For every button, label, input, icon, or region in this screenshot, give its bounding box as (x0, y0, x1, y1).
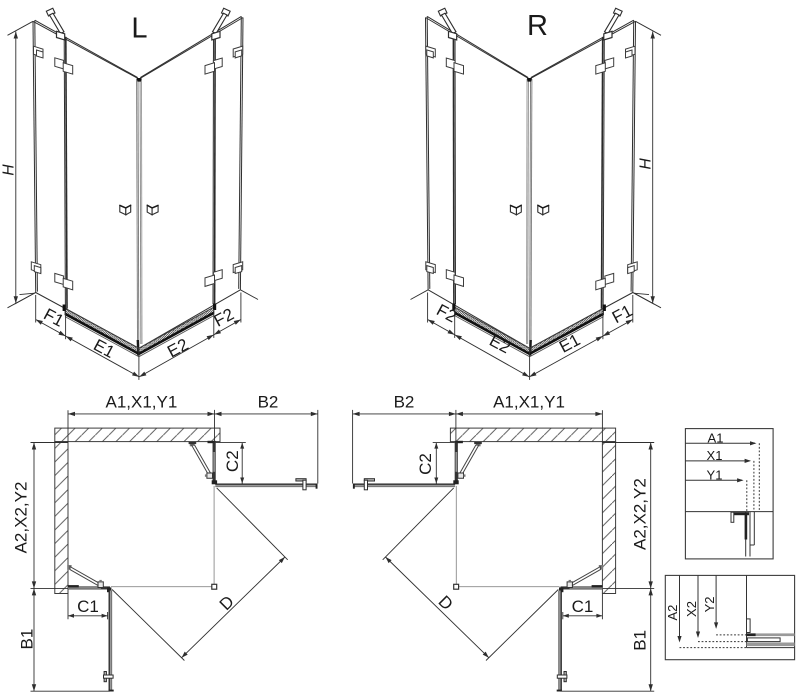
svg-text:B2: B2 (258, 393, 279, 412)
svg-text:A2,X2,Y2: A2,X2,Y2 (631, 478, 650, 550)
svg-text:C1: C1 (572, 597, 594, 616)
svg-text:H: H (0, 164, 17, 176)
svg-text:B1: B1 (18, 629, 37, 650)
svg-text:Y1: Y1 (707, 467, 723, 482)
svg-text:X1: X1 (707, 448, 723, 463)
svg-text:H: H (637, 158, 654, 170)
svg-text:R: R (527, 10, 548, 42)
svg-text:A1: A1 (708, 430, 724, 445)
svg-text:L: L (131, 12, 147, 44)
svg-text:B2: B2 (394, 393, 415, 412)
svg-text:A1,X1,Y1: A1,X1,Y1 (105, 393, 177, 412)
svg-text:C2: C2 (416, 453, 435, 475)
svg-text:Y2: Y2 (702, 596, 717, 612)
svg-text:A2: A2 (665, 605, 680, 621)
svg-text:A1,X1,Y1: A1,X1,Y1 (493, 393, 565, 412)
svg-text:C2: C2 (223, 450, 242, 472)
svg-text:A2,X2,Y2: A2,X2,Y2 (12, 482, 31, 554)
svg-text:C1: C1 (77, 597, 99, 616)
svg-text:X2: X2 (684, 601, 699, 617)
svg-text:B1: B1 (631, 630, 650, 651)
